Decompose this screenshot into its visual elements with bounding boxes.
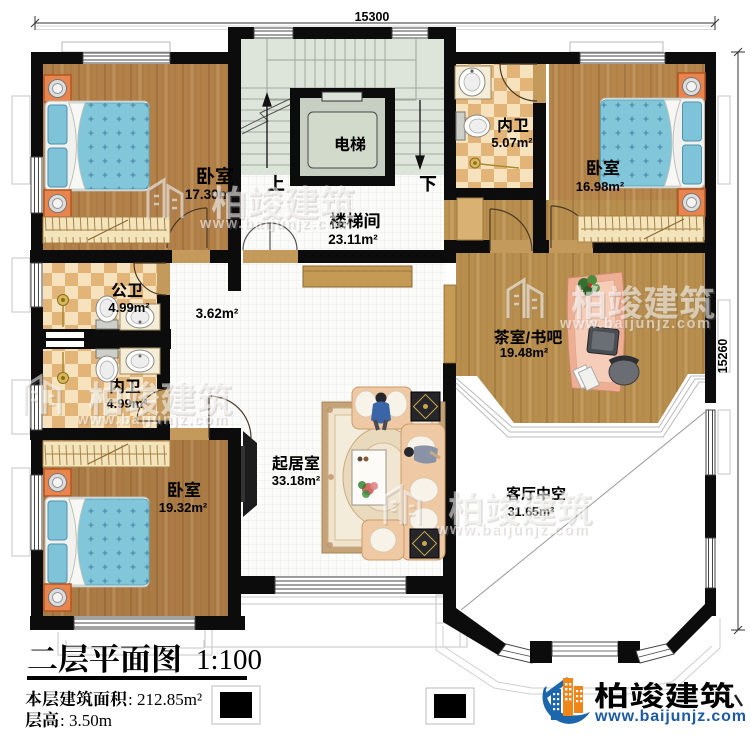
svg-text:16.98m²: 16.98m² bbox=[576, 179, 625, 194]
svg-text:: 212.85m²: : 212.85m² bbox=[128, 690, 202, 709]
svg-text:: 3.50m: : 3.50m bbox=[60, 711, 112, 730]
svg-text:3.62m²: 3.62m² bbox=[196, 306, 239, 321]
svg-text:15300: 15300 bbox=[355, 10, 390, 24]
svg-text:19.32m²: 19.32m² bbox=[159, 500, 208, 515]
svg-text:33.18m²: 33.18m² bbox=[272, 473, 321, 488]
svg-text:5.07m²: 5.07m² bbox=[491, 135, 533, 150]
svg-text:19.48m²: 19.48m² bbox=[500, 345, 549, 360]
svg-text:1:100: 1:100 bbox=[196, 644, 262, 676]
svg-text:23.11m²: 23.11m² bbox=[328, 232, 378, 247]
svg-text:www.baijunjz.com: www.baijunjz.com bbox=[594, 708, 746, 725]
svg-text:15260: 15260 bbox=[716, 339, 730, 374]
svg-text:4.99m²: 4.99m² bbox=[108, 300, 150, 315]
